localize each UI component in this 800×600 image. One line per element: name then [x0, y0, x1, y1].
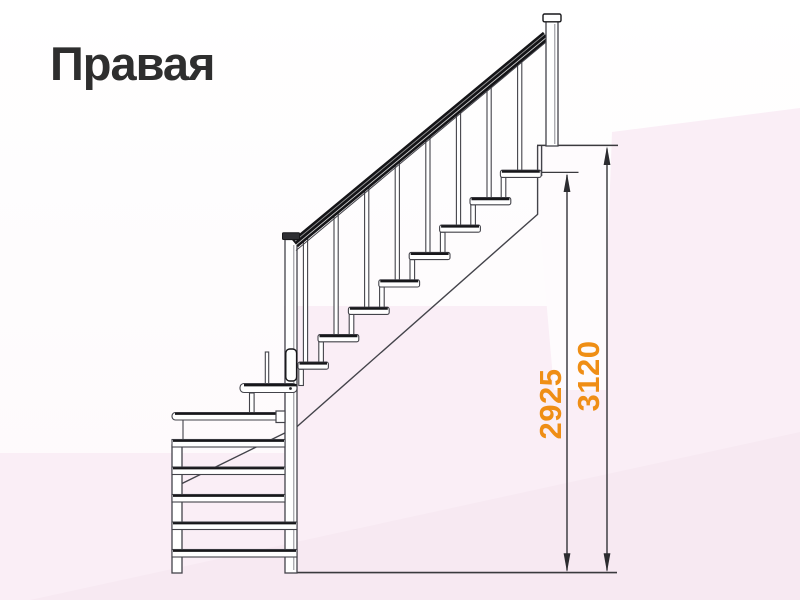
riser-support: [440, 232, 445, 254]
handrail-underline: [296, 43, 546, 251]
baluster: [518, 56, 522, 172]
riser-support: [250, 393, 255, 415]
riser-support: [349, 314, 354, 336]
riser-support: [410, 260, 415, 282]
background-facets: [0, 108, 800, 600]
newel-trim-block: [286, 349, 297, 381]
upper-newel-cap: [543, 14, 561, 22]
handrail-bar: [295, 36, 546, 244]
lower-newel-cap: [283, 233, 300, 240]
fixing-dot: [289, 387, 292, 390]
staircase-drawing: [0, 0, 800, 600]
page-title: Правая: [50, 40, 214, 87]
baluster: [456, 106, 460, 226]
baluster: [334, 208, 338, 336]
upper-newel-post: [546, 22, 558, 147]
riser-support: [501, 177, 506, 199]
riser-support: [319, 342, 324, 364]
riser-support: [380, 287, 385, 309]
handrail-stripe: [295, 33, 546, 241]
dimension-label-2925: 2925: [534, 334, 568, 474]
handrail-stripe: [295, 38, 546, 246]
winder-tread-bracket: [276, 411, 285, 423]
winder-short-baluster: [265, 352, 268, 388]
baluster: [487, 81, 491, 199]
baluster: [395, 157, 399, 281]
baluster: [365, 183, 369, 309]
bottom-flight-tread: [240, 384, 297, 393]
winder-section: [172, 240, 297, 574]
upper-newel: [543, 14, 561, 146]
riser-support: [299, 369, 304, 385]
stair-diagram-page: Правая 2925 3120: [0, 0, 800, 600]
handrail: [295, 33, 546, 250]
baluster: [426, 132, 430, 254]
baluster: [303, 233, 307, 363]
dimension-label-3120: 3120: [572, 306, 606, 446]
riser-support: [471, 205, 476, 227]
